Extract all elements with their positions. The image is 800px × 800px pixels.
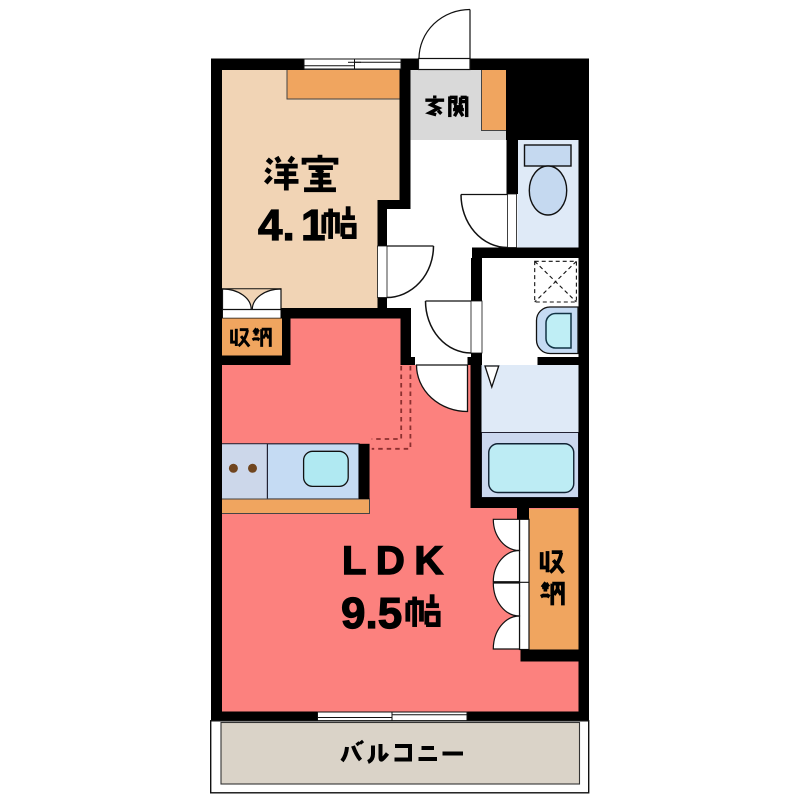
svg-text:4.: 4. xyxy=(258,201,295,250)
svg-text:LDK: LDK xyxy=(342,539,453,583)
svg-text:9.5: 9.5 xyxy=(341,589,402,638)
